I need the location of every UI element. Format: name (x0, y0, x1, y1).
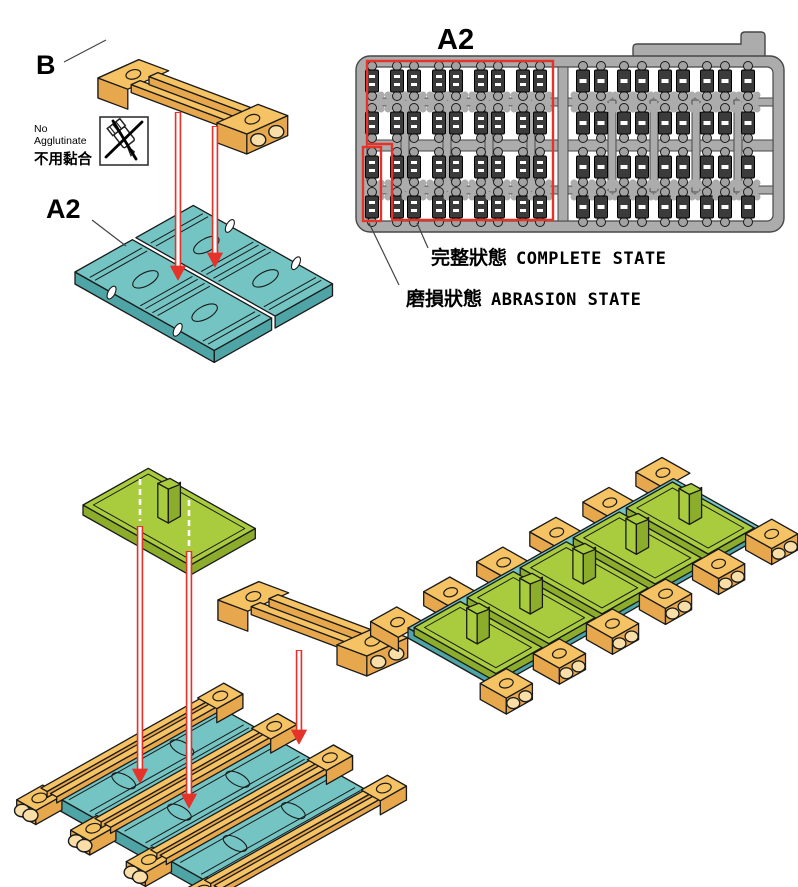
no-glue-note: No Agglutinate 不用黏合 (34, 123, 98, 169)
assembly-arrow (292, 650, 307, 744)
complete-state-en: COMPLETE STATE (516, 249, 666, 269)
complete-state-zh: 完整狀態 (431, 243, 507, 270)
complete-state-caption: 完整狀態 COMPLETE STATE (431, 243, 666, 270)
abrasion-state-zh: 磨損狀態 (406, 284, 482, 311)
track-pad-drawing (83, 468, 255, 575)
no-glue-text-en: No Agglutinate (34, 123, 98, 147)
abrasion-state-en: ABRASION STATE (491, 290, 641, 310)
track-assembly-complete-drawing (371, 458, 798, 715)
part-b-label: B (36, 52, 56, 79)
part-a2-label: A2 (46, 196, 81, 223)
diagram-canvas (0, 0, 798, 887)
abrasion-state-caption: 磨損狀態 ABRASION STATE (406, 284, 641, 311)
track-shoe-pair-drawing (75, 205, 333, 362)
no-glue-text-zh: 不用黏合 (34, 148, 98, 169)
instruction-sheet: B No Agglutinate 不用黏合 A2 A2 完整狀態 COMPLET… (0, 0, 798, 887)
no-glue-icon (100, 117, 148, 165)
track-assembly-exploded-drawing (15, 683, 407, 887)
sprue-a2-label: A2 (437, 26, 474, 55)
